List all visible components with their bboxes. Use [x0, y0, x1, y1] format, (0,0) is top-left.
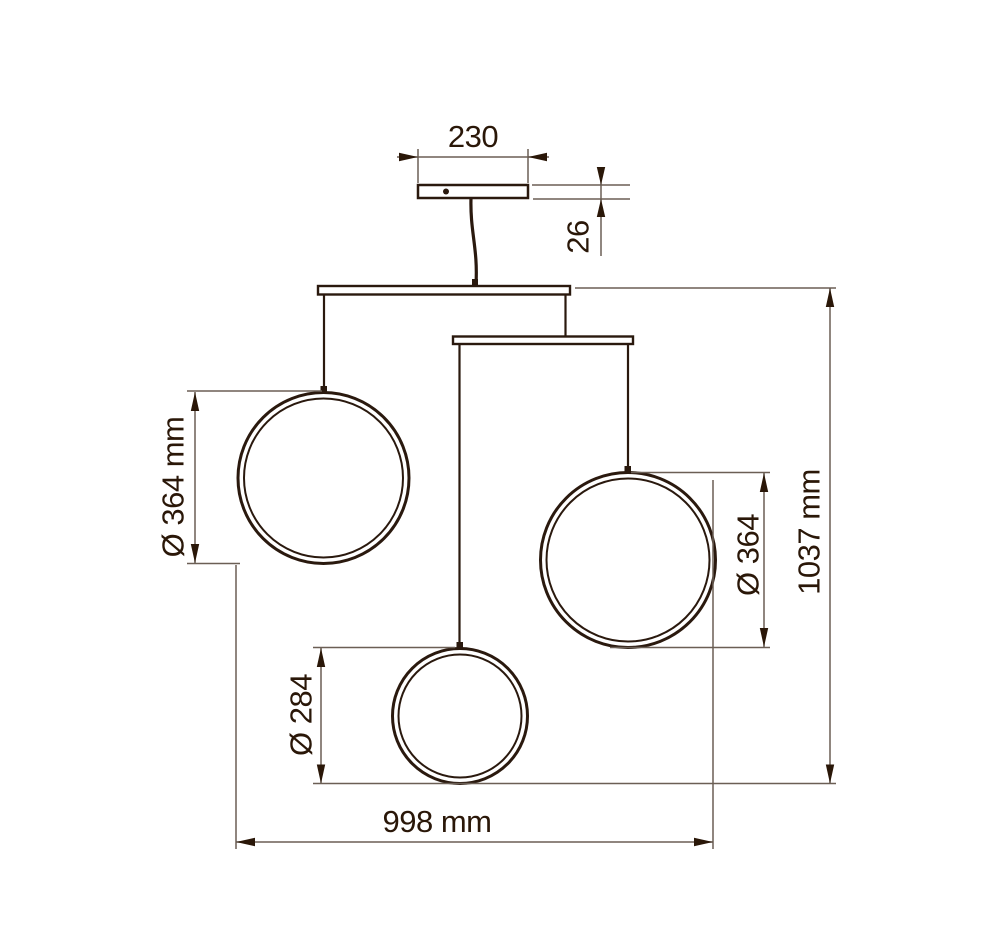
- canopy-mounting-dot: [443, 189, 449, 195]
- arrowhead: [760, 628, 768, 647]
- right-ring: [541, 473, 716, 648]
- dim-canopy-width: 230: [397, 119, 549, 183]
- arrowhead: [826, 288, 834, 307]
- arrowhead: [528, 153, 547, 161]
- dim-label-canopy-height: 26: [561, 220, 596, 253]
- arrowhead: [694, 838, 713, 846]
- dim-label-overall-height: 1037 mm: [792, 469, 827, 595]
- arrowhead: [191, 392, 199, 411]
- arrowhead: [191, 544, 199, 563]
- dim-label-left-ring: Ø 364 mm: [156, 417, 191, 558]
- arrowhead: [317, 765, 325, 784]
- dim-bottom-ring-diameter: Ø 284: [284, 648, 456, 784]
- arrowhead: [826, 765, 834, 784]
- bottom-ring: [393, 649, 528, 784]
- dim-overall-width: 998 mm: [236, 480, 713, 849]
- dim-canopy-height: 26: [532, 167, 630, 256]
- arrowhead: [597, 199, 605, 217]
- secondary-bar: [453, 337, 633, 345]
- arrowhead: [236, 838, 255, 846]
- dim-label-right-ring: Ø 364: [731, 514, 766, 596]
- arrowhead: [317, 648, 325, 667]
- pendant-lamp-dimension-drawing: 230 26 Ø 364 mm Ø 364: [0, 0, 984, 931]
- dim-label-canopy-width: 230: [448, 119, 498, 154]
- ceiling-canopy: [418, 185, 528, 198]
- top-bar: [318, 286, 570, 295]
- dim-label-overall-width: 998 mm: [383, 804, 492, 839]
- left-ring: [238, 393, 409, 564]
- dim-label-bottom-ring: Ø 284: [284, 674, 319, 756]
- arrowhead: [399, 153, 418, 161]
- arrowhead: [760, 473, 768, 492]
- suspension-stem: [471, 198, 476, 284]
- arrowhead: [597, 167, 605, 185]
- technical-drawing-page: 230 26 Ø 364 mm Ø 364: [0, 0, 984, 931]
